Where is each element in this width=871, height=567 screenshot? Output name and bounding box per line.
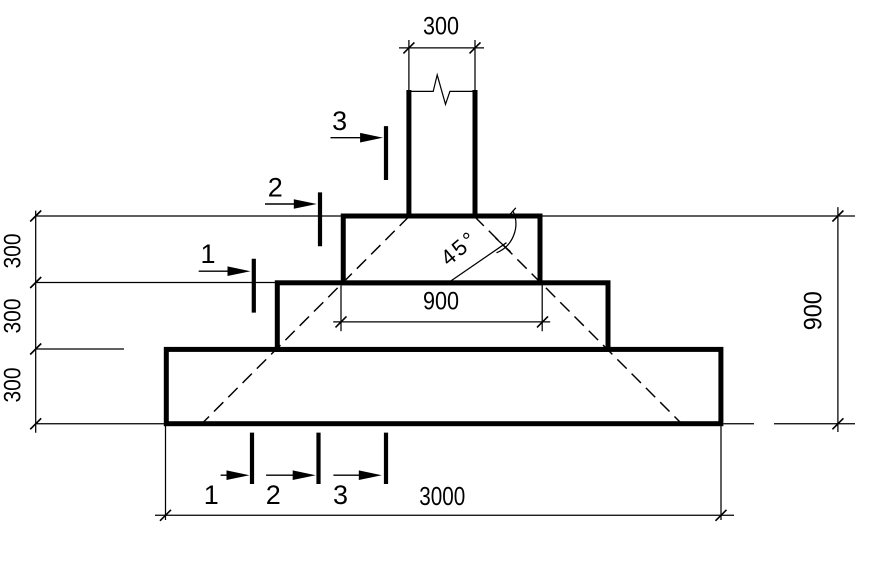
svg-text:300: 300 [0,368,27,403]
svg-text:3000: 3000 [419,481,465,511]
svg-text:1: 1 [204,480,219,510]
svg-text:300: 300 [0,234,27,269]
svg-text:1: 1 [200,239,215,269]
svg-text:900: 900 [800,291,828,330]
svg-text:3: 3 [332,106,347,136]
svg-text:300: 300 [0,299,27,334]
svg-text:2: 2 [268,173,283,203]
svg-text:3: 3 [333,480,348,510]
svg-text:300: 300 [423,12,459,40]
svg-text:2: 2 [266,480,281,510]
svg-text:900: 900 [423,288,459,316]
